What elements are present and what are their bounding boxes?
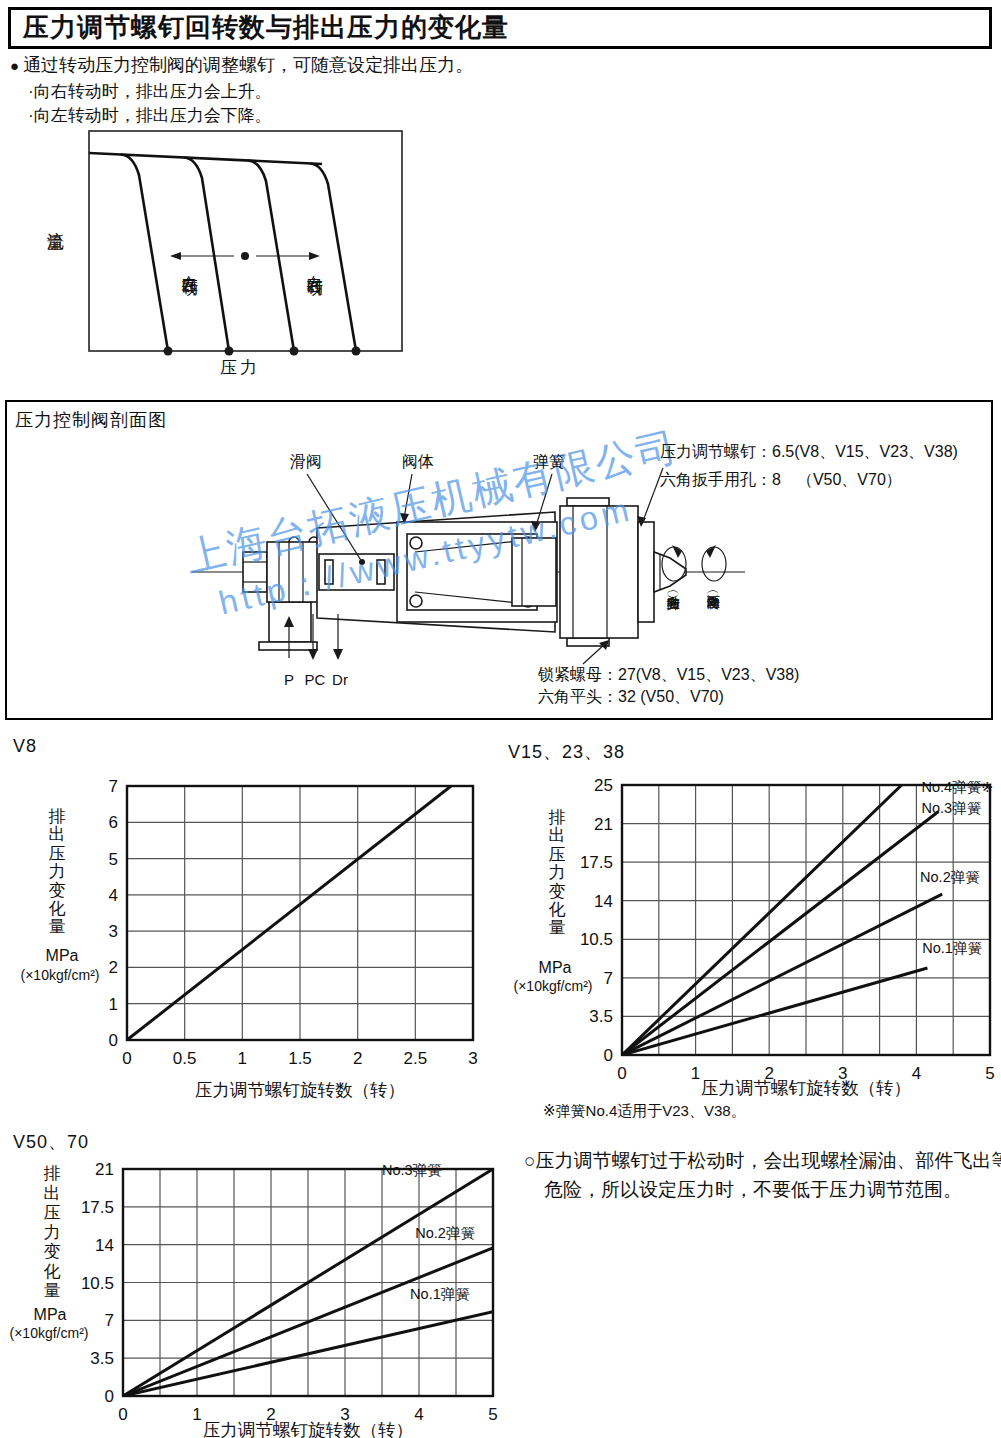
svg-text:3: 3 [109, 922, 118, 941]
locknut-line1: 锁紧螺母：27(V8、V15、V23、V38) [538, 664, 799, 686]
svg-text:压: 压 [549, 845, 566, 864]
hex-hole-annotation: 六角扳手用孔：8 （V50、V70） [660, 470, 902, 491]
svg-text:10.5: 10.5 [580, 930, 613, 949]
chart-svg-v15: 01234503.5710.51417.52125No.4弹簧※No.3弹簧No… [500, 730, 1001, 1115]
svg-text:No.4弹簧※: No.4弹簧※ [922, 779, 994, 795]
svg-text:压: 压 [44, 1203, 61, 1222]
chart-svg-v50: 01234503.5710.51417.521No.3弹簧No.2弹簧No.1弹… [0, 1120, 520, 1438]
port-pc-label: PC [305, 671, 326, 688]
svg-text:1: 1 [238, 1049, 247, 1068]
svg-text:5: 5 [985, 1064, 994, 1083]
svg-text:2: 2 [353, 1049, 362, 1068]
svg-text:1: 1 [109, 995, 118, 1014]
svg-text:MPa: MPa [34, 1306, 67, 1323]
intro-sub-right: ·向右转动时，排出压力会上升。 [28, 80, 272, 103]
svg-text:(×10kgf/cm²): (×10kgf/cm²) [10, 1325, 89, 1341]
svg-text:量: 量 [44, 1281, 61, 1300]
svg-text:5: 5 [488, 1405, 497, 1424]
turn-right-label: 向右转动 [306, 262, 323, 270]
svg-text:力: 力 [549, 863, 566, 882]
svg-text:0: 0 [105, 1387, 114, 1406]
port-dr-label: Dr [332, 671, 348, 688]
spring-footnote: ※弹簧No.4适用于V23、V38。 [543, 1102, 746, 1121]
svg-text:变: 变 [44, 1242, 61, 1261]
svg-text:0: 0 [109, 1031, 118, 1050]
svg-text:7: 7 [109, 777, 118, 796]
port-pc-arrow-icon [308, 649, 318, 660]
svg-text:压力调节螺钉旋转数（转）: 压力调节螺钉旋转数（转） [701, 1078, 911, 1098]
svg-text:MPa: MPa [539, 959, 572, 976]
svg-text:出: 出 [49, 825, 66, 844]
svg-text:压力调节螺钉旋转数（转）: 压力调节螺钉旋转数（转） [195, 1080, 405, 1100]
svg-text:化: 化 [49, 899, 66, 918]
valve-body-label: 阀体 [402, 452, 434, 473]
svg-text:17.5: 17.5 [81, 1198, 114, 1217]
svg-text:0: 0 [118, 1405, 127, 1424]
arrow-right-icon [309, 252, 320, 260]
svg-text:压力调节螺钉旋转数（转）: 压力调节螺钉旋转数（转） [203, 1420, 413, 1438]
svg-text:量: 量 [549, 918, 566, 937]
spool-label: 滑阀 [290, 452, 322, 473]
svg-text:17.5: 17.5 [580, 853, 613, 872]
svg-text:No.2弹簧: No.2弹簧 [415, 1225, 475, 1241]
svg-text:No.3弹簧: No.3弹簧 [382, 1162, 442, 1178]
svg-text:7: 7 [604, 969, 613, 988]
svg-text:压: 压 [49, 844, 66, 863]
svg-text:力: 力 [44, 1223, 61, 1242]
svg-text:1: 1 [691, 1064, 700, 1083]
page-title: 压力调节螺钉回转数与排出压力的变化量 [8, 7, 992, 49]
svg-text:3: 3 [468, 1049, 477, 1068]
svg-text:排: 排 [49, 807, 66, 826]
chart-title-v15: V15、23、38 [508, 740, 625, 764]
chart-title-v50: V50、70 [13, 1130, 89, 1154]
intro-text: 通过转动压力控制阀的调整螺钉，可随意设定排出压力。 [23, 55, 473, 75]
chart-svg-v8: 00.511.522.5301234567排出压力变化量MPa(×10kgf/c… [0, 730, 500, 1110]
svg-text:量: 量 [49, 917, 66, 936]
svg-text:排: 排 [44, 1164, 61, 1183]
svg-text:3.5: 3.5 [589, 1007, 613, 1026]
port-p-label: P [284, 671, 294, 688]
svg-text:2: 2 [109, 958, 118, 977]
svg-text:4: 4 [109, 886, 118, 905]
svg-text:5: 5 [109, 850, 118, 869]
svg-text:4: 4 [912, 1064, 921, 1083]
catalog-page: 压力调节螺钉回转数与排出压力的变化量 ●通过转动压力控制阀的调整螺钉，可随意设定… [0, 0, 1001, 1438]
svg-text:14: 14 [95, 1236, 114, 1255]
bullet-icon: ● [10, 57, 19, 74]
svg-text:MPa: MPa [46, 947, 79, 964]
svg-text:10.5: 10.5 [81, 1274, 114, 1293]
svg-text:(×10kgf/cm²): (×10kgf/cm²) [514, 978, 593, 994]
svg-text:6: 6 [109, 813, 118, 832]
valve-section-box: 压力控制阀剖面图 [5, 400, 993, 720]
flow-y-axis-label: 流量 [46, 218, 64, 228]
svg-text:No.1弹簧: No.1弹簧 [922, 940, 982, 956]
svg-text:0: 0 [617, 1064, 626, 1083]
svg-text:变: 变 [549, 882, 566, 901]
svg-text:No.2弹簧: No.2弹簧 [920, 869, 980, 885]
svg-text:(×10kgf/cm²): (×10kgf/cm²) [21, 967, 100, 983]
svg-text:化: 化 [44, 1262, 61, 1281]
port-dr-arrow-icon [333, 649, 343, 660]
turn-left-label: 向左转动 [181, 262, 198, 270]
svg-text:出: 出 [44, 1184, 61, 1203]
svg-text:4: 4 [414, 1405, 423, 1424]
svg-text:出: 出 [549, 826, 566, 845]
setpoint-dot [241, 252, 249, 260]
flow-x-axis-label: 压力 [205, 356, 275, 379]
svg-text:3.5: 3.5 [90, 1349, 114, 1368]
spring-label: 弹簧 [533, 452, 565, 473]
svg-text:21: 21 [594, 815, 613, 834]
svg-text:力: 力 [49, 862, 66, 881]
svg-text:1.5: 1.5 [288, 1049, 312, 1068]
svg-text:排: 排 [549, 808, 566, 827]
svg-text:No.3弹簧: No.3弹簧 [922, 800, 982, 816]
locknut-line2: 六角平头：32 (V50、V70) [538, 686, 799, 708]
intro-line: ●通过转动压力控制阀的调整螺钉，可随意设定排出压力。 [10, 53, 473, 77]
svg-text:2.5: 2.5 [404, 1049, 428, 1068]
svg-text:14: 14 [594, 892, 613, 911]
caution-note: ○压力调节螺钉过于松动时，会出现螺栓漏油、部件飞出等危险，所以设定压力时，不要低… [524, 1146, 1001, 1204]
svg-text:21: 21 [95, 1160, 114, 1179]
svg-text:0.5: 0.5 [173, 1049, 197, 1068]
flow-pressure-diagram [30, 125, 415, 370]
adjust-screw-annotation: 压力调节螺钉：6.5(V8、V15、V23、V38) [660, 442, 958, 463]
svg-text:25: 25 [594, 776, 613, 795]
intro-sub-left: ·向左转动时，排出压力会下降。 [28, 104, 272, 127]
svg-text:7: 7 [105, 1311, 114, 1330]
svg-text:化: 化 [549, 900, 566, 919]
svg-text:1: 1 [192, 1405, 201, 1424]
svg-text:变: 变 [49, 881, 66, 900]
svg-text:0: 0 [122, 1049, 131, 1068]
svg-text:No.1弹簧: No.1弹簧 [410, 1286, 470, 1302]
chart-title-v8: V8 [13, 736, 37, 757]
svg-text:0: 0 [604, 1046, 613, 1065]
arrow-left-icon [170, 252, 181, 260]
locknut-annotation: 锁紧螺母：27(V8、V15、V23、V38) 六角平头：32 (V50、V70… [538, 664, 799, 708]
